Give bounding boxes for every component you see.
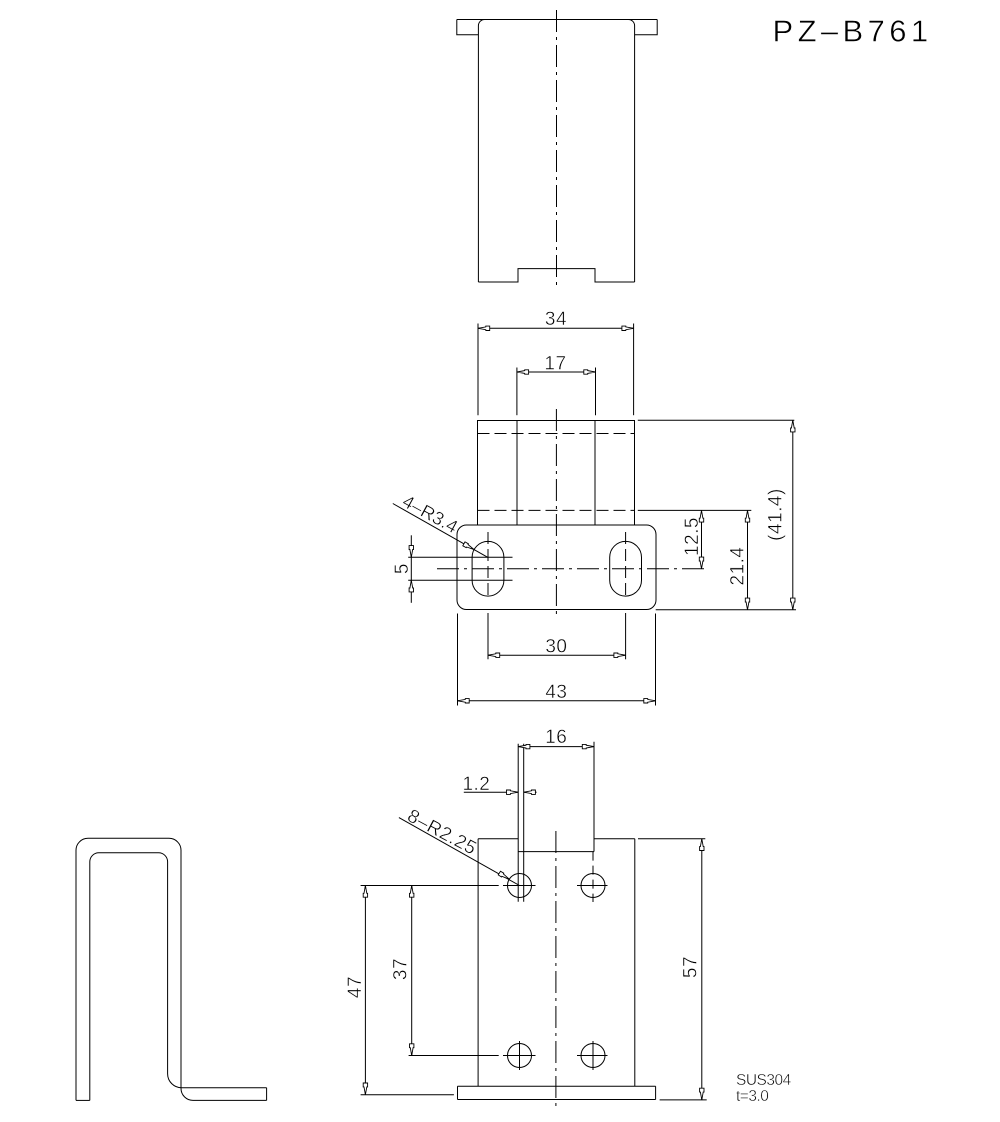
svg-text:34: 34 — [545, 309, 567, 330]
svg-text:SUS304: SUS304 — [736, 1072, 792, 1089]
svg-text:30: 30 — [545, 636, 567, 657]
svg-text:47: 47 — [345, 976, 366, 998]
svg-text:t=3.0: t=3.0 — [736, 1088, 769, 1105]
svg-text:5: 5 — [392, 563, 413, 574]
svg-text:16: 16 — [545, 727, 567, 748]
svg-text:43: 43 — [545, 682, 567, 703]
svg-text:17: 17 — [544, 354, 566, 375]
svg-text:1.2: 1.2 — [462, 774, 490, 795]
svg-text:PZ–B761: PZ–B761 — [773, 14, 933, 49]
svg-text:21.4: 21.4 — [728, 547, 749, 586]
svg-text:37: 37 — [391, 958, 412, 980]
svg-text:4–R3.4: 4–R3.4 — [399, 490, 461, 537]
svg-text:(41.4): (41.4) — [766, 488, 787, 541]
svg-text:57: 57 — [681, 956, 702, 978]
svg-text:8–R2.25: 8–R2.25 — [404, 806, 480, 860]
svg-text:12.5: 12.5 — [682, 517, 703, 556]
